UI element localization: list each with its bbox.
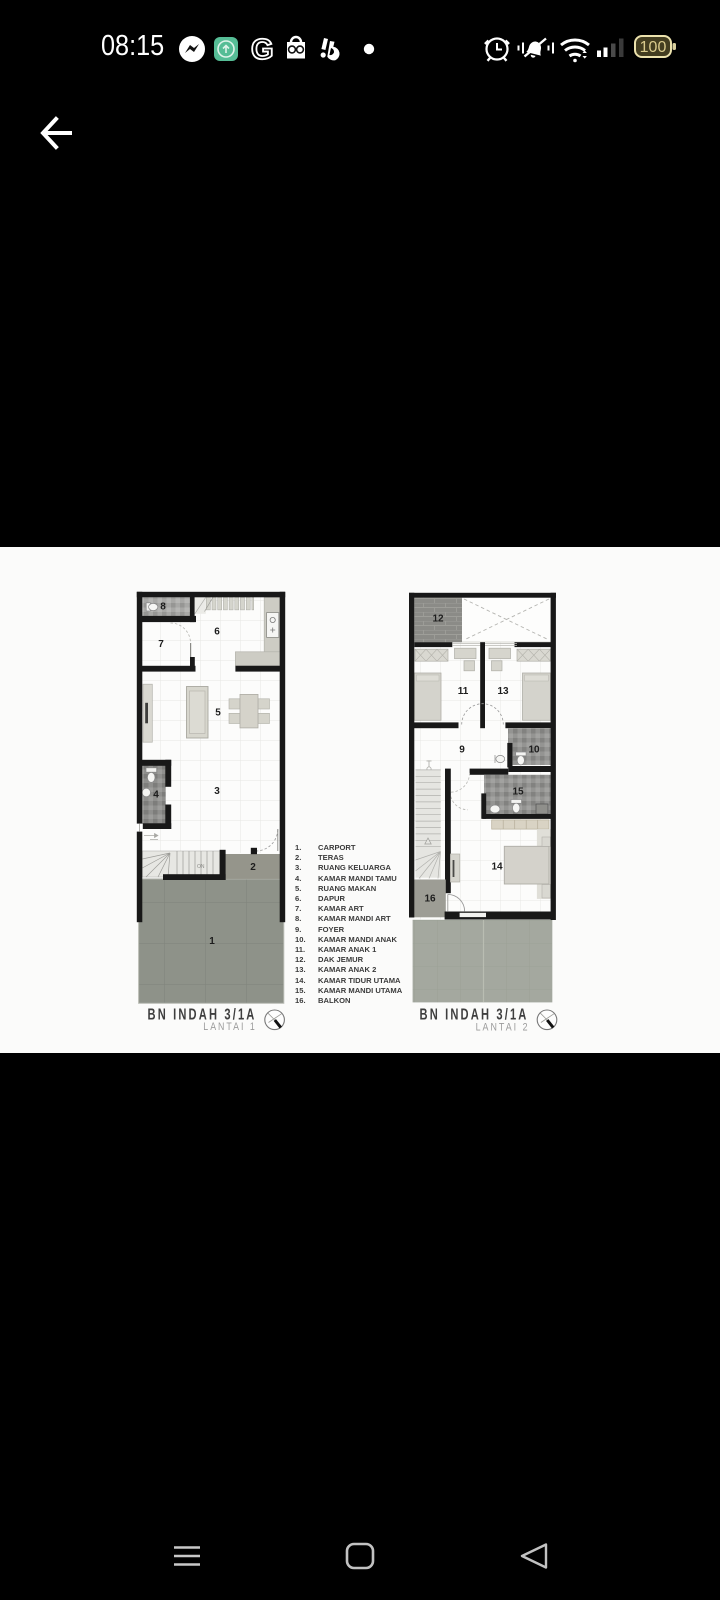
svg-text:7: 7 xyxy=(158,639,164,650)
svg-text:3: 3 xyxy=(214,786,220,797)
svg-text:ON: ON xyxy=(197,864,205,870)
svg-text:9: 9 xyxy=(459,745,465,756)
svg-text:5: 5 xyxy=(215,708,221,719)
svg-text:LANTAI 1: LANTAI 1 xyxy=(203,1021,256,1033)
svg-text:1: 1 xyxy=(209,936,215,947)
svg-text:8: 8 xyxy=(160,602,166,613)
svg-text:15: 15 xyxy=(512,787,524,798)
svg-text:LANTAI 2: LANTAI 2 xyxy=(476,1022,530,1034)
svg-text:4: 4 xyxy=(153,790,159,801)
svg-text:11: 11 xyxy=(458,686,469,697)
svg-text:100: 100 xyxy=(640,39,667,56)
svg-text:2: 2 xyxy=(250,862,256,873)
svg-text:6: 6 xyxy=(214,627,220,638)
svg-text:13: 13 xyxy=(497,686,509,697)
svg-text:10: 10 xyxy=(528,745,540,756)
svg-text:G: G xyxy=(251,34,274,66)
svg-text:14: 14 xyxy=(491,862,503,873)
svg-text:12: 12 xyxy=(432,614,444,625)
svg-text:16: 16 xyxy=(424,894,436,905)
